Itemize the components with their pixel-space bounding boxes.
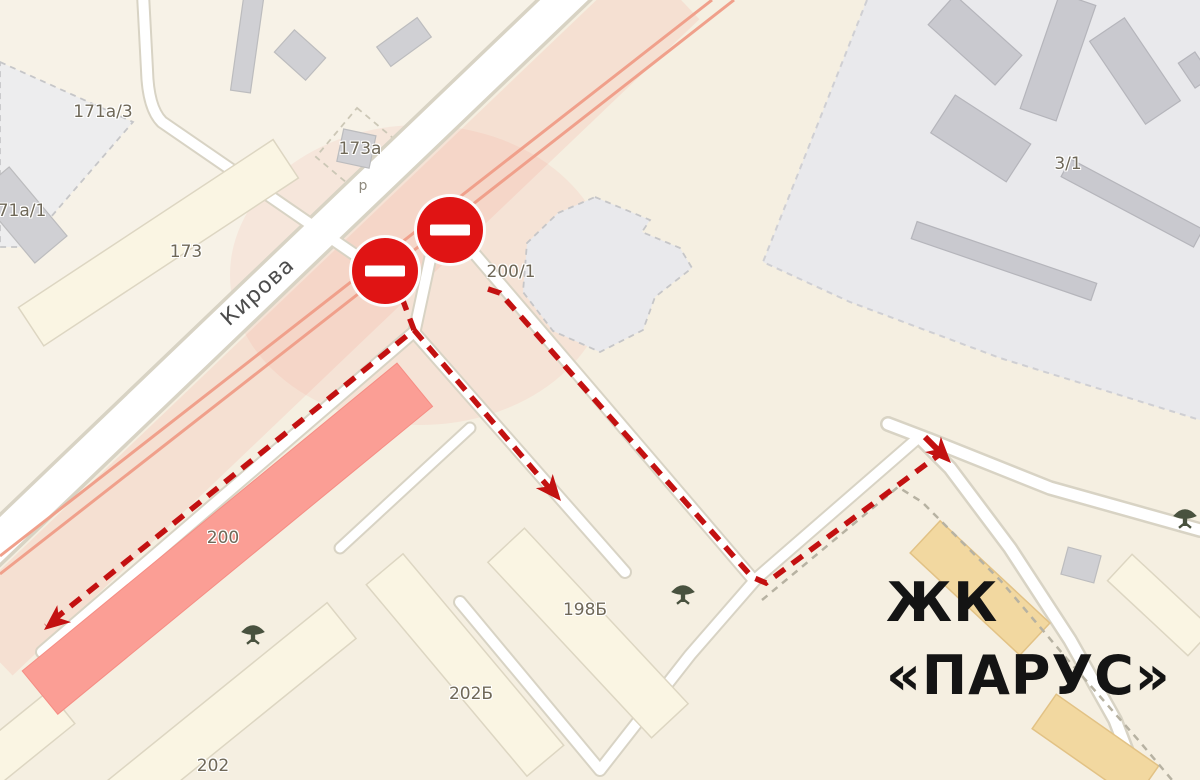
parcel-label-171a3: 171а/3 [73, 102, 132, 122]
complex-title-line1: ЖК [886, 566, 1171, 639]
map-canvas: 171а/3 71а/1 173 173а р 200/1 200 198Б 2… [0, 0, 1200, 780]
building-label-200: 200 [207, 528, 239, 548]
parking-label: р [359, 178, 368, 194]
building-label-202: 202 [197, 756, 229, 776]
no-entry-sign [349, 235, 421, 307]
building-label-200-1: 200/1 [487, 262, 536, 282]
building-label-173: 173 [170, 242, 202, 262]
building-label-71a1: 71а/1 [0, 201, 46, 221]
complex-title: ЖК «ПАРУС» [886, 566, 1171, 712]
building-label-202b: 202Б [449, 684, 493, 704]
industrial-zone [763, 0, 1200, 420]
complex-title-line2: «ПАРУС» [886, 639, 1171, 712]
tree-icon [242, 626, 264, 644]
building-label-173a: 173а [339, 139, 382, 159]
no-entry-sign [414, 194, 486, 266]
building-label-3-1: 3/1 [1054, 154, 1081, 174]
building-label-198b: 198Б [563, 600, 607, 620]
tree-icon [672, 586, 694, 604]
